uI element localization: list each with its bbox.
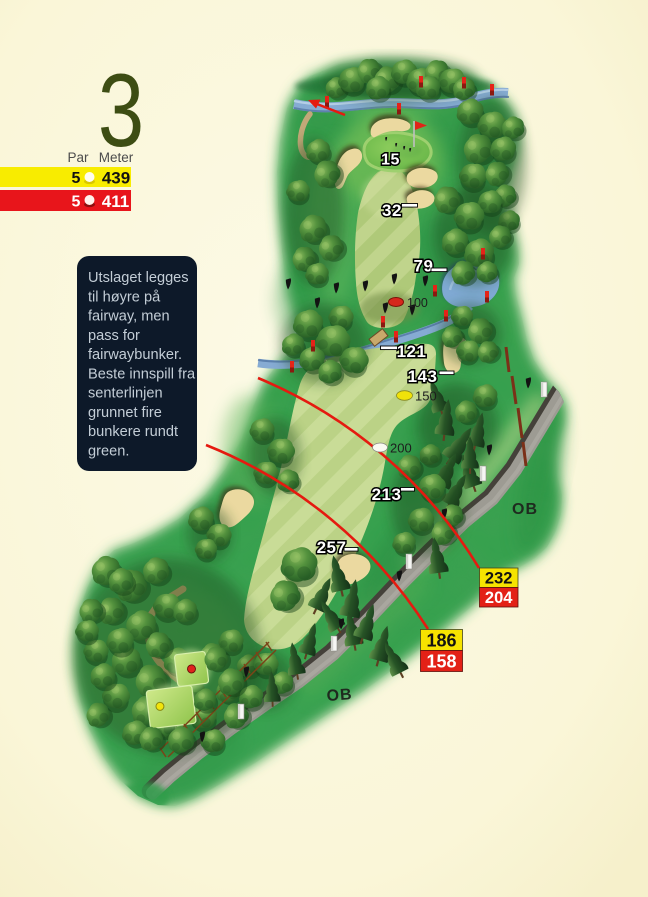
svg-text:79: 79 [414, 257, 434, 276]
svg-text:Meter: Meter [99, 150, 134, 165]
svg-text:OB: OB [512, 501, 538, 518]
svg-text:grunnet fire: grunnet fire [88, 405, 162, 421]
svg-text:232: 232 [485, 570, 513, 588]
svg-text:100: 100 [407, 296, 428, 310]
svg-text:32: 32 [382, 201, 402, 220]
svg-text:257: 257 [317, 538, 347, 557]
svg-text:200: 200 [390, 441, 412, 456]
svg-text:150: 150 [415, 389, 437, 404]
svg-text:213: 213 [372, 485, 402, 504]
svg-text:Par: Par [67, 150, 89, 165]
svg-text:186: 186 [426, 631, 456, 651]
svg-text:fairwaybunker.: fairwaybunker. [88, 347, 182, 363]
svg-text:senterlinjen: senterlinjen [88, 386, 163, 402]
svg-text:5: 5 [72, 170, 81, 187]
svg-text:204: 204 [485, 589, 513, 607]
svg-text:pass for: pass for [88, 328, 140, 344]
svg-text:15: 15 [381, 152, 400, 169]
svg-text:143: 143 [408, 367, 438, 386]
svg-text:439: 439 [102, 169, 130, 188]
svg-text:411: 411 [102, 192, 129, 211]
svg-text:green.: green. [88, 443, 129, 459]
svg-text:Beste innspill fra: Beste innspill fra [88, 366, 196, 382]
svg-text:121: 121 [397, 342, 427, 361]
svg-text:5: 5 [72, 194, 81, 211]
svg-text:til høyre på: til høyre på [88, 289, 161, 305]
svg-text:158: 158 [426, 652, 456, 672]
svg-text:bunkere rundt: bunkere rundt [88, 424, 178, 440]
svg-text:Utslaget legges: Utslaget legges [88, 270, 189, 286]
svg-text:fairway, men: fairway, men [88, 309, 170, 325]
svg-text:OB: OB [326, 686, 353, 705]
